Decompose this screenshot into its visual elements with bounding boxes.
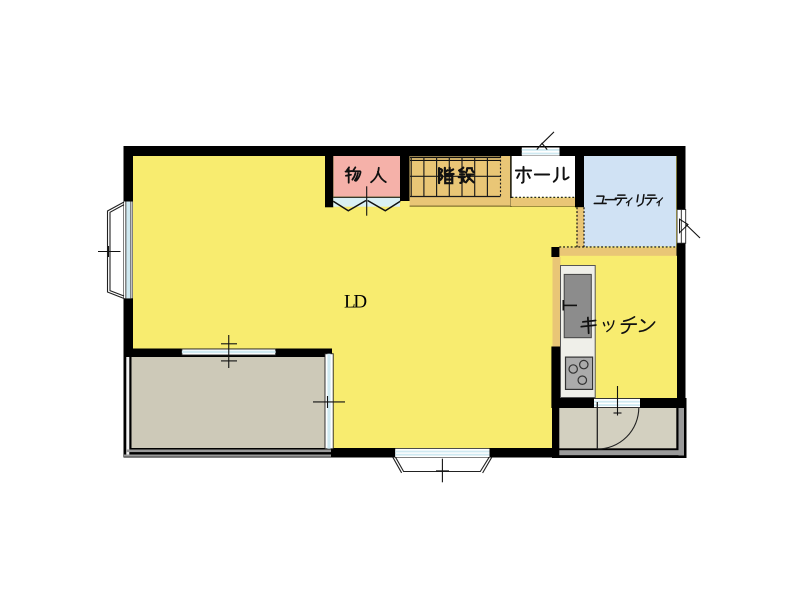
svg-text:LD: LD	[344, 292, 366, 313]
